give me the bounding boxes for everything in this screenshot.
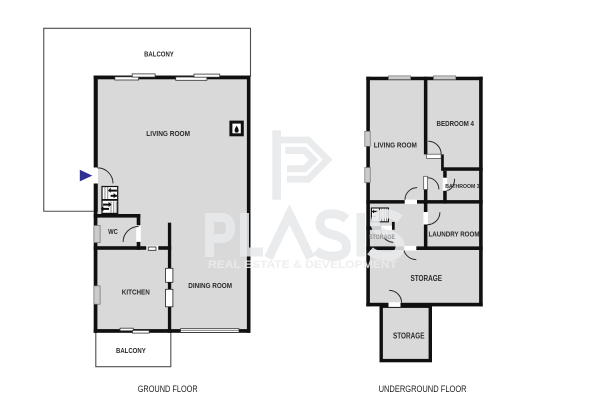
svg-text:DINING ROOM: DINING ROOM xyxy=(188,281,232,290)
svg-text:STORAGE: STORAGE xyxy=(411,274,443,283)
svg-text:WC: WC xyxy=(108,227,118,236)
svg-text:KITCHEN: KITCHEN xyxy=(122,288,150,297)
svg-text:REAL ESTATE & DEVELOPMENT: REAL ESTATE & DEVELOPMENT xyxy=(208,259,397,271)
svg-text:BEDROOM 4: BEDROOM 4 xyxy=(437,119,475,128)
svg-text:BATHROOM 3: BATHROOM 3 xyxy=(445,184,480,190)
svg-text:LIVING ROOM: LIVING ROOM xyxy=(374,140,417,149)
svg-text:STORAGE: STORAGE xyxy=(393,331,425,340)
svg-text:BALCONY: BALCONY xyxy=(144,49,174,58)
svg-text:GROUND FLOOR: GROUND FLOOR xyxy=(138,384,198,394)
svg-text:LAUNDRY ROOM: LAUNDRY ROOM xyxy=(429,229,480,238)
svg-text:LIVING ROOM: LIVING ROOM xyxy=(146,129,190,138)
svg-text:STORAGE: STORAGE xyxy=(369,234,395,241)
svg-text:UNDERGROUND FLOOR: UNDERGROUND FLOOR xyxy=(379,384,467,394)
svg-text:BALCONY: BALCONY xyxy=(116,346,146,355)
